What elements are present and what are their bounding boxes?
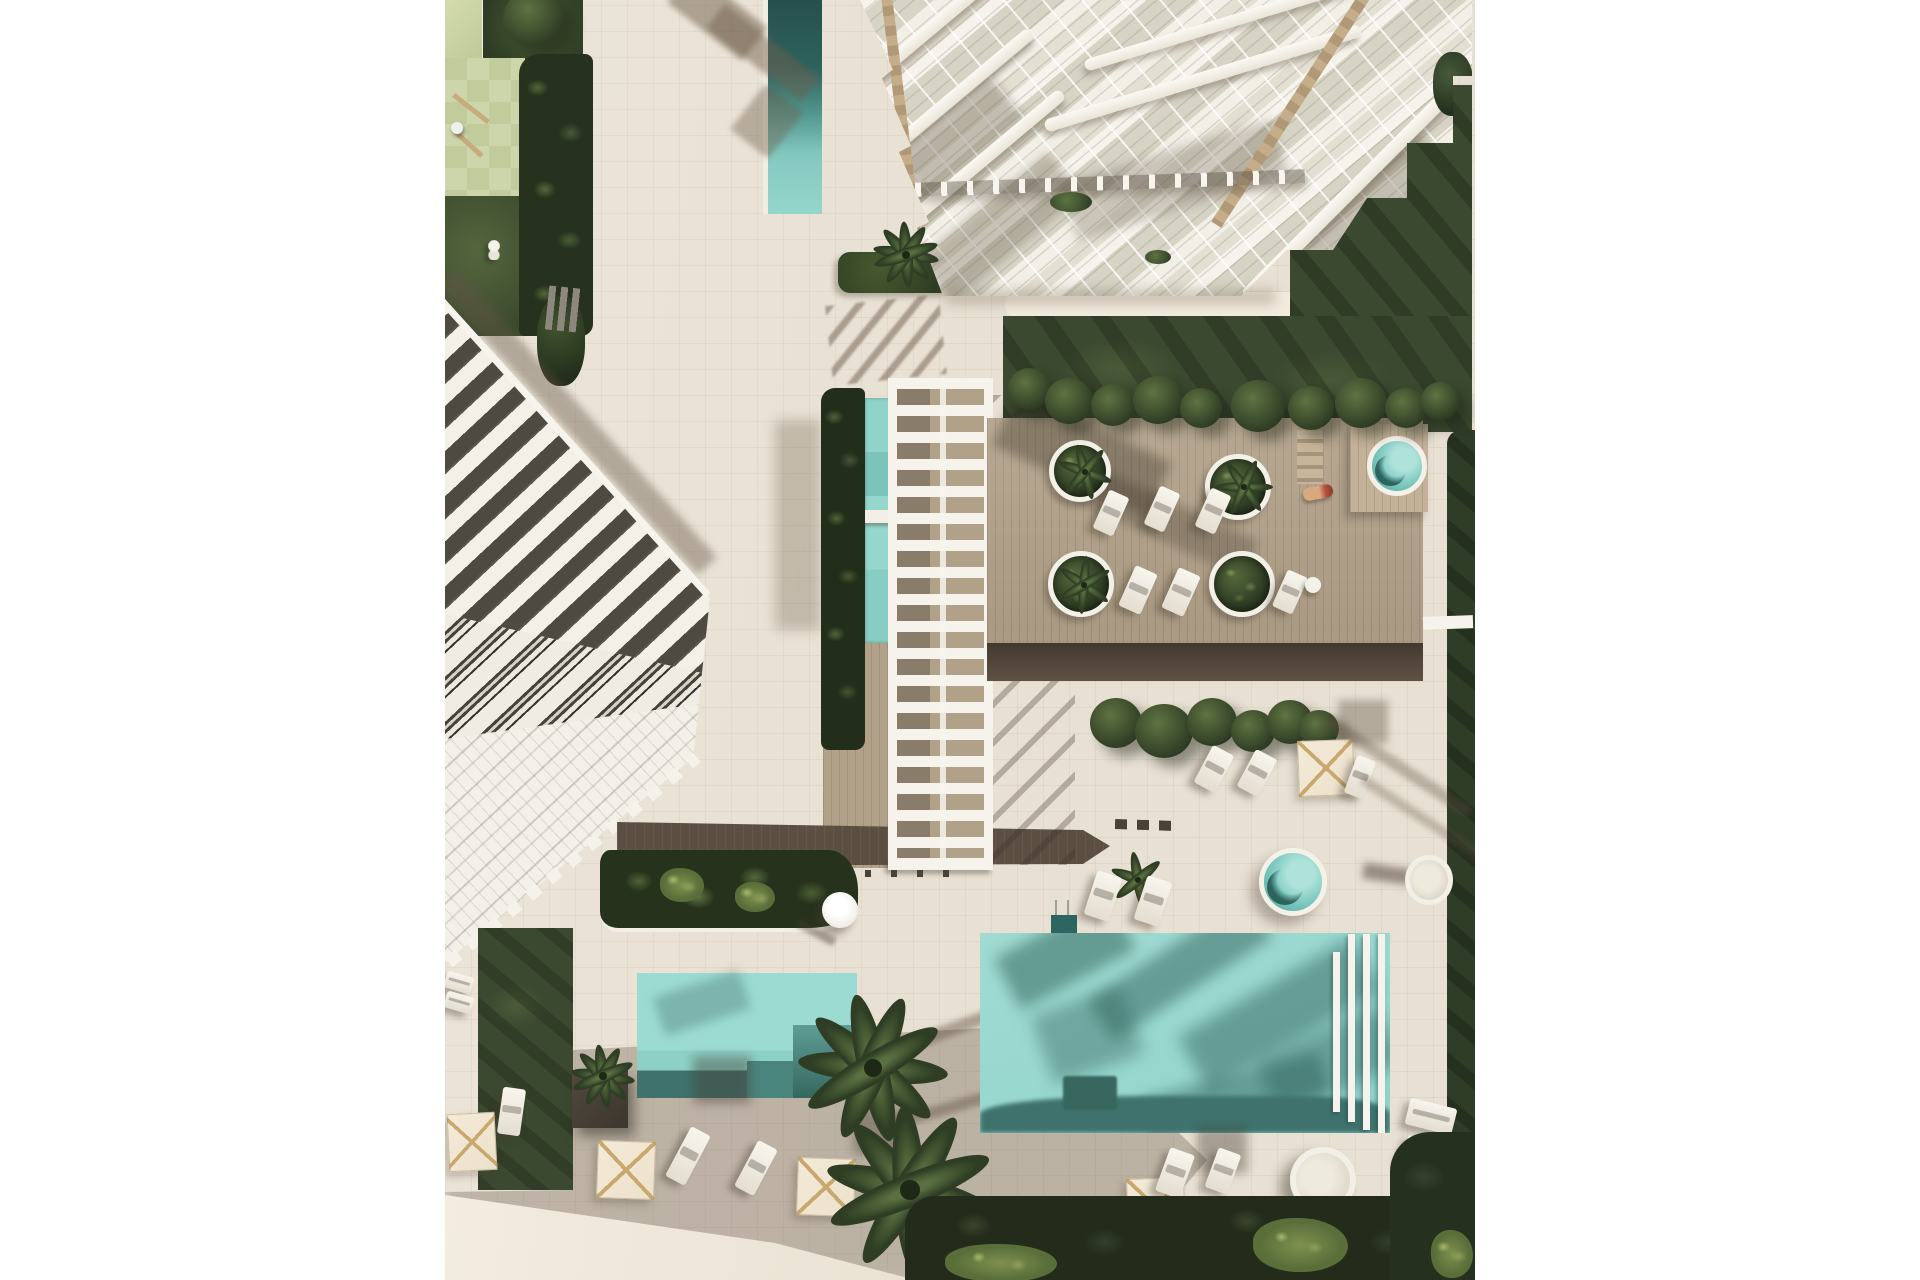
swing-frame [447,100,493,180]
person-with-dog [487,240,501,260]
balcony-plant [1145,250,1171,264]
umbrella-shadow [853,1108,905,1154]
render-canvas [445,0,1475,1280]
garden-tree [1421,382,1459,420]
balcony-plant [1050,192,1092,212]
planter-box [572,1070,628,1128]
leafy-shrub [735,882,775,912]
garden-tree [1091,384,1135,426]
planting-bed [600,850,858,932]
garden-bench [545,285,581,332]
round-planter [1048,551,1114,617]
garden-tree [1090,698,1142,748]
deck-steps [1297,430,1323,484]
jacuzzi-terrace [1259,848,1327,916]
pergola-end-bar [888,858,993,870]
garden-tree [1045,378,1093,424]
garden-tree [1135,704,1193,758]
lawn-edge-strip [1447,430,1475,1200]
round-table [822,892,858,928]
side-table [1305,577,1321,593]
page [0,0,1920,1280]
small-pool-step-shadow [793,1025,857,1098]
umbrella [796,1157,856,1217]
garden-tree [1008,368,1050,410]
pool-lane-bar [1333,952,1340,1112]
umbrella [596,1140,656,1200]
pool-lane-bar [1363,934,1370,1130]
pool-hedge [821,388,865,750]
pool-entry-step [1051,915,1077,933]
pool-pergola [888,378,993,870]
stepping-posts [865,870,955,877]
swing-seat [451,122,463,134]
garden-tree [1288,386,1334,430]
umbrella [447,1112,498,1172]
balcony-plant [933,198,963,216]
leafy-shrub [1253,1218,1348,1272]
pergola-rail [940,378,946,870]
pool-lane-bar [1348,934,1355,1122]
garden-tree [1187,698,1237,746]
deck-edge-shadow [987,643,1423,681]
garden-tree [1385,388,1427,428]
pergola-upper-shadow [825,294,947,385]
garden-tree [1133,376,1183,424]
pool-bench [1063,1076,1117,1110]
round-chair [1405,855,1453,905]
pool-lane-bar [1378,934,1385,1133]
pool-deep-band [980,1096,1390,1133]
pergola-rail [888,378,897,870]
tower-base-shadow [945,290,1275,304]
green-canopy [445,0,485,62]
garden-tree [1180,388,1222,428]
round-planter [1209,551,1275,617]
pool-ladder [1055,900,1071,915]
leafy-shrub [660,868,704,902]
leafy-shrub [1431,1230,1473,1278]
garden-tree [1231,380,1285,432]
jacuzzi-deck [1367,436,1427,496]
deck-edge-bar [1423,615,1473,630]
garden-tree [1335,378,1387,428]
pool-reflection-shadow [653,970,751,1036]
main-pool [980,933,1390,1133]
palm-shadow-paving [775,420,821,630]
umbrella-shadow [693,1056,751,1104]
small-pool-step-shadow [747,1061,793,1098]
stepping-stones [1115,819,1175,831]
leafy-shrub [945,1244,1057,1280]
round-planter [1049,440,1111,502]
